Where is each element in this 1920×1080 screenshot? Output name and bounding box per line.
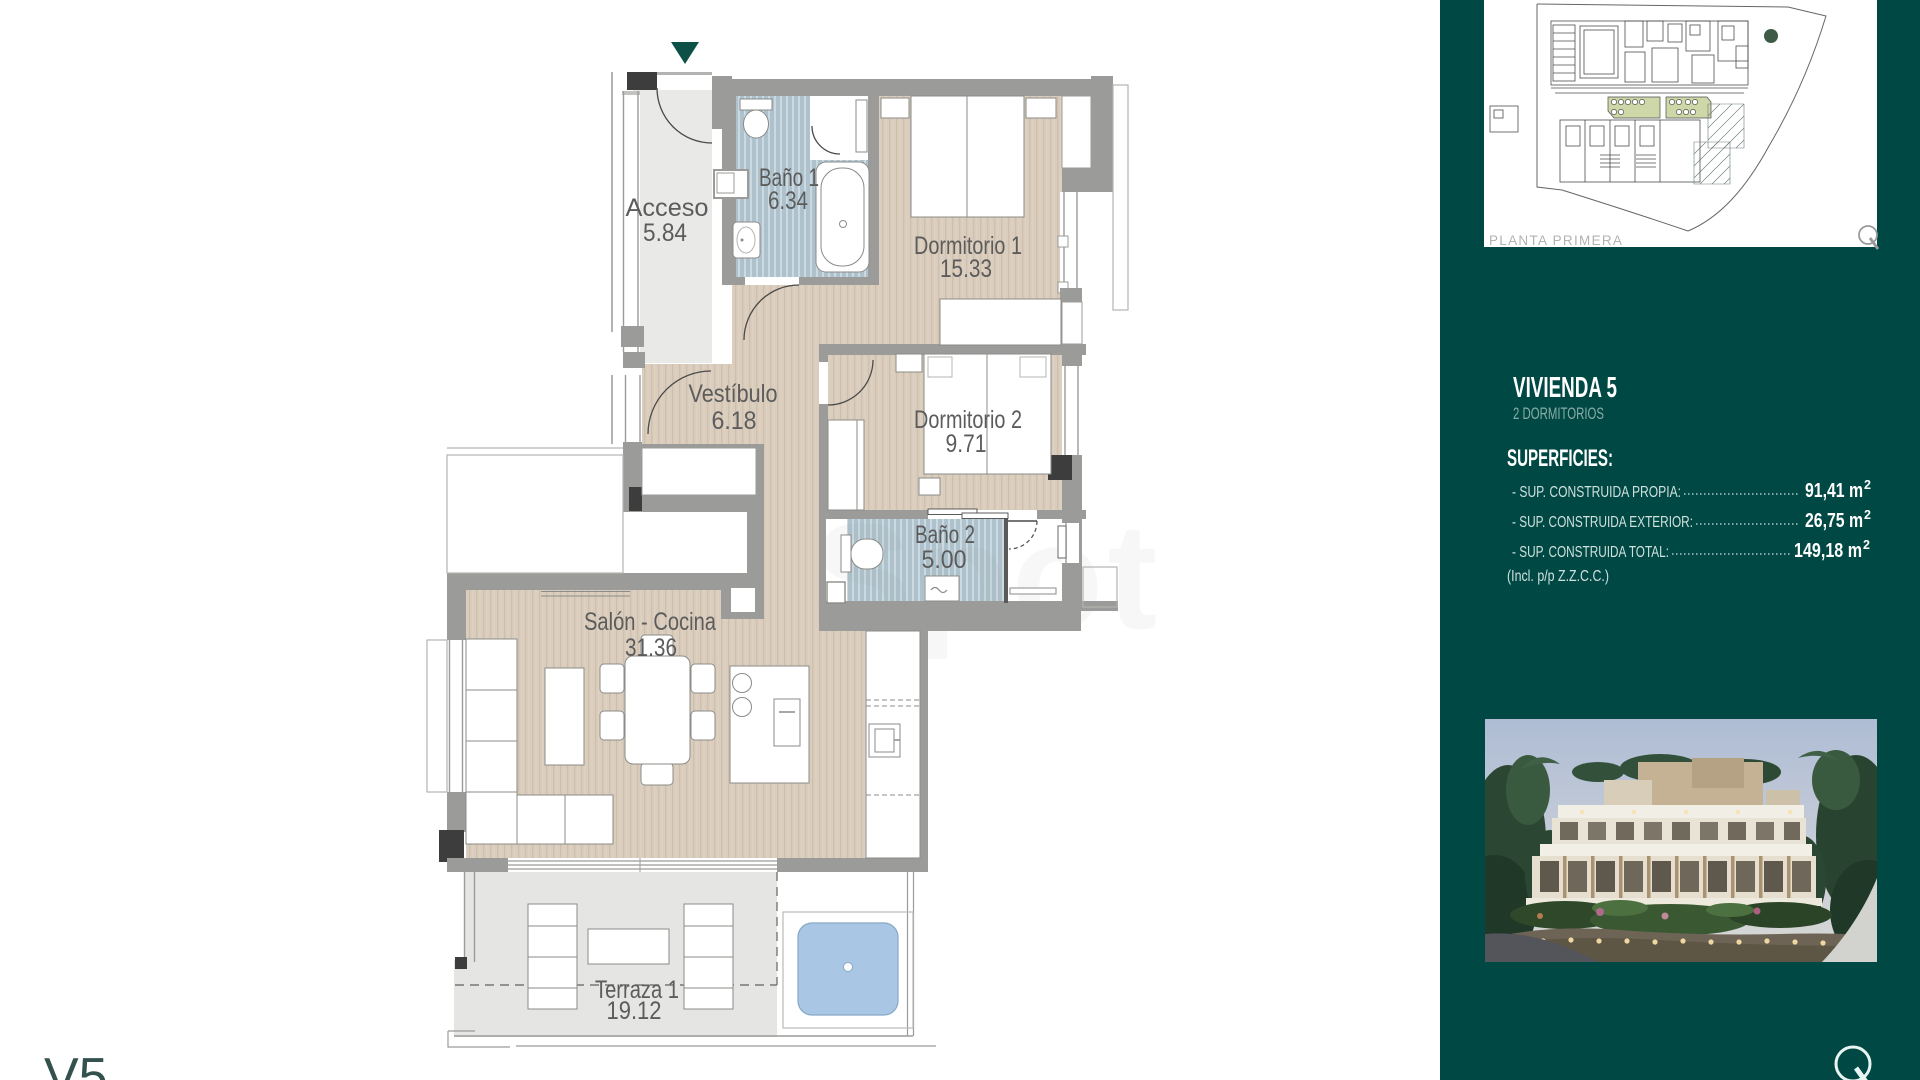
- svg-text:Acceso: Acceso: [626, 194, 709, 222]
- svg-text:2: 2: [1863, 538, 1870, 552]
- svg-text:5.84: 5.84: [643, 219, 687, 247]
- svg-text:- SUP. CONSTRUIDA EXTERIOR:: - SUP. CONSTRUIDA EXTERIOR:: [1512, 514, 1693, 531]
- svg-text:Baño 2: Baño 2: [915, 521, 975, 549]
- svg-text:6.34: 6.34: [768, 187, 808, 215]
- svg-text:15.33: 15.33: [940, 255, 992, 283]
- svg-text:Vestíbulo: Vestíbulo: [689, 380, 778, 408]
- svg-text:Salón - Cocina: Salón - Cocina: [584, 608, 716, 636]
- svg-text:- SUP. CONSTRUIDA TOTAL:: - SUP. CONSTRUIDA TOTAL:: [1512, 544, 1669, 561]
- svg-text:6.18: 6.18: [712, 407, 757, 435]
- svg-text:26,75 m: 26,75 m: [1805, 510, 1863, 532]
- svg-text:91,41 m: 91,41 m: [1805, 480, 1863, 502]
- svg-text:9.71: 9.71: [946, 430, 987, 458]
- svg-text:VIVIENDA 5: VIVIENDA 5: [1513, 372, 1617, 404]
- svg-text:- SUP. CONSTRUIDA PROPIA:: - SUP. CONSTRUIDA PROPIA:: [1512, 484, 1681, 501]
- svg-text:2 DORMITORIOS: 2 DORMITORIOS: [1513, 405, 1604, 423]
- svg-text:V5: V5: [44, 1048, 108, 1080]
- svg-text:149,18 m: 149,18 m: [1794, 540, 1862, 562]
- svg-text:(Incl. p/p Z.Z.C.C.): (Incl. p/p Z.Z.C.C.): [1507, 568, 1609, 585]
- svg-text:2: 2: [1864, 478, 1871, 492]
- svg-text:2: 2: [1864, 508, 1871, 522]
- svg-text:PLANTA PRIMERA: PLANTA PRIMERA: [1489, 233, 1623, 248]
- svg-text:5.00: 5.00: [922, 546, 967, 574]
- svg-text:SUPERFICIES:: SUPERFICIES:: [1507, 445, 1613, 472]
- svg-text:31.36: 31.36: [625, 634, 677, 662]
- svg-text:19.12: 19.12: [607, 997, 662, 1025]
